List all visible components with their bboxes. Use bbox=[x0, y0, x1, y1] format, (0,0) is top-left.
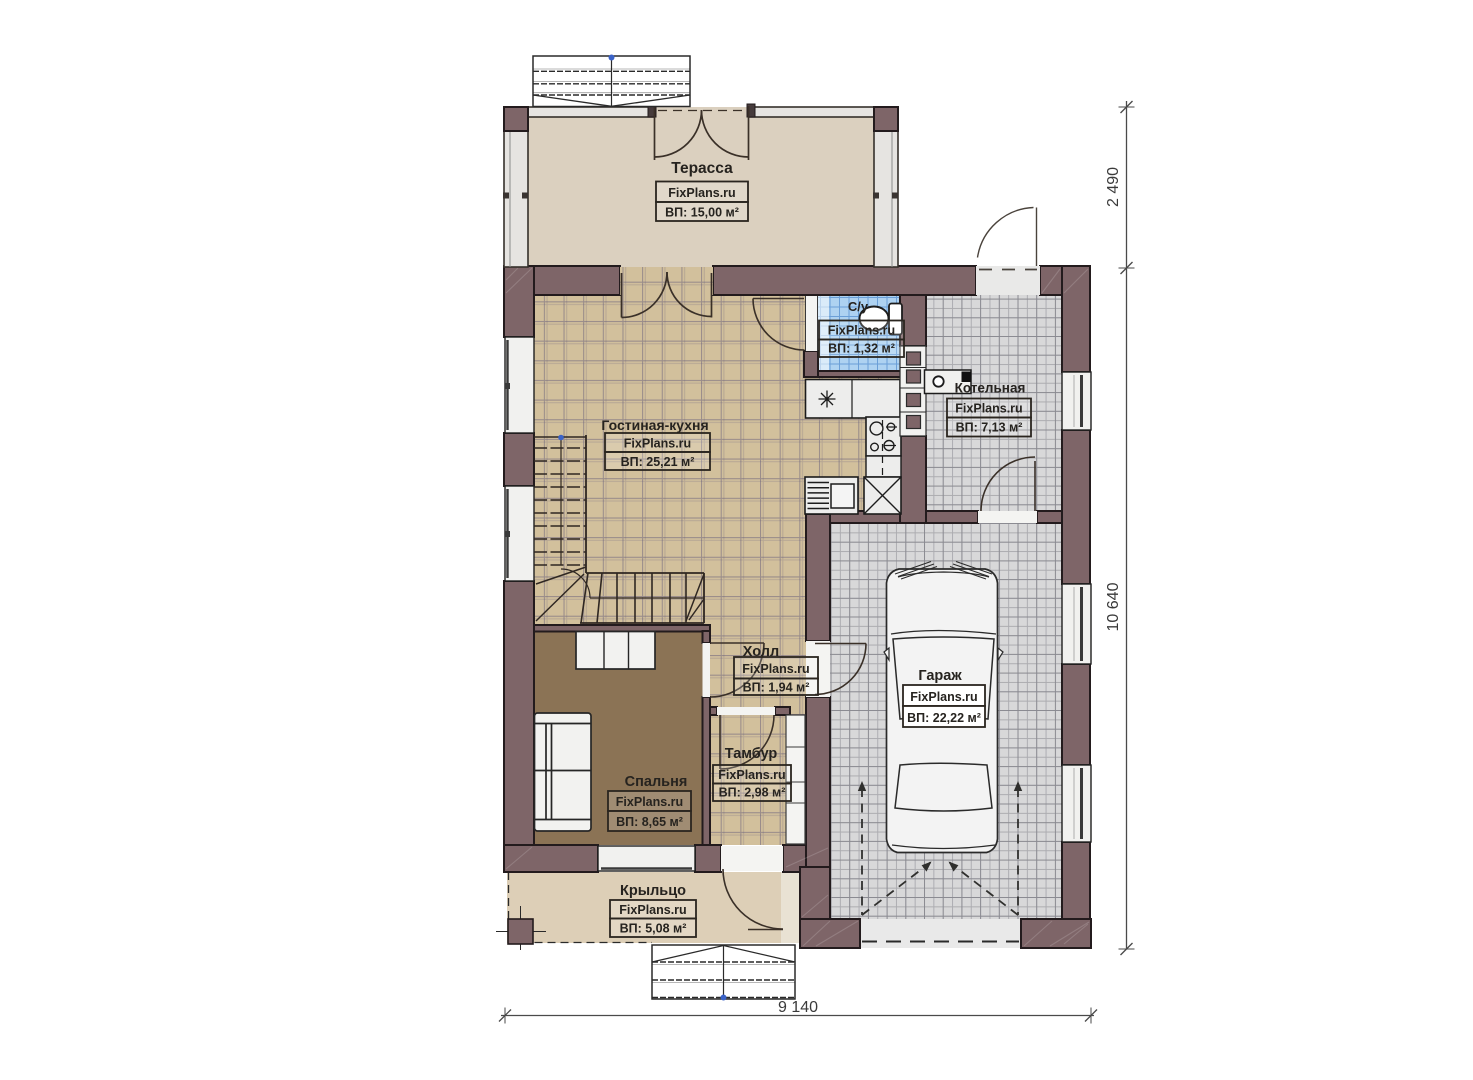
svg-text:FixPlans.ru: FixPlans.ru bbox=[910, 690, 977, 704]
svg-text:ВП: 25,21 м²: ВП: 25,21 м² bbox=[621, 455, 695, 469]
svg-text:FixPlans.ru: FixPlans.ru bbox=[718, 768, 785, 782]
svg-text:Крыльцо: Крыльцо bbox=[620, 883, 686, 899]
svg-text:FixPlans.ru: FixPlans.ru bbox=[619, 903, 686, 917]
svg-text:Терасса: Терасса bbox=[671, 160, 733, 177]
svg-text:ВП: 5,08 м²: ВП: 5,08 м² bbox=[620, 922, 687, 936]
svg-text:FixPlans.ru: FixPlans.ru bbox=[668, 186, 735, 200]
svg-text:Гостиная-кухня: Гостиная-кухня bbox=[601, 417, 708, 433]
svg-text:Тамбур: Тамбур bbox=[725, 746, 778, 762]
svg-text:10 640: 10 640 bbox=[1105, 582, 1122, 631]
svg-text:FixPlans.ru: FixPlans.ru bbox=[828, 324, 895, 338]
svg-text:2 490: 2 490 bbox=[1105, 167, 1122, 207]
svg-text:ВП: 1,32 м²: ВП: 1,32 м² bbox=[828, 342, 895, 356]
svg-text:Спальня: Спальня bbox=[625, 774, 688, 790]
svg-text:ВП: 2,98 м²: ВП: 2,98 м² bbox=[719, 786, 786, 800]
svg-text:ВП: 15,00 м²: ВП: 15,00 м² bbox=[665, 206, 739, 220]
svg-text:ВП: 1,94 м²: ВП: 1,94 м² bbox=[743, 681, 810, 695]
svg-text:ВП: 8,65 м²: ВП: 8,65 м² bbox=[616, 815, 683, 829]
svg-text:ВП: 7,13 м²: ВП: 7,13 м² bbox=[956, 421, 1023, 435]
svg-text:С/у: С/у bbox=[848, 299, 869, 314]
svg-text:FixPlans.ru: FixPlans.ru bbox=[616, 795, 683, 809]
svg-text:ВП: 22,22 м²: ВП: 22,22 м² bbox=[907, 711, 981, 725]
svg-text:Гараж: Гараж bbox=[918, 668, 962, 684]
svg-text:9 140: 9 140 bbox=[778, 999, 818, 1016]
svg-text:FixPlans.ru: FixPlans.ru bbox=[624, 437, 691, 451]
svg-text:FixPlans.ru: FixPlans.ru bbox=[955, 402, 1022, 416]
svg-text:FixPlans.ru: FixPlans.ru bbox=[742, 662, 809, 676]
svg-text:Котельная: Котельная bbox=[955, 381, 1026, 396]
